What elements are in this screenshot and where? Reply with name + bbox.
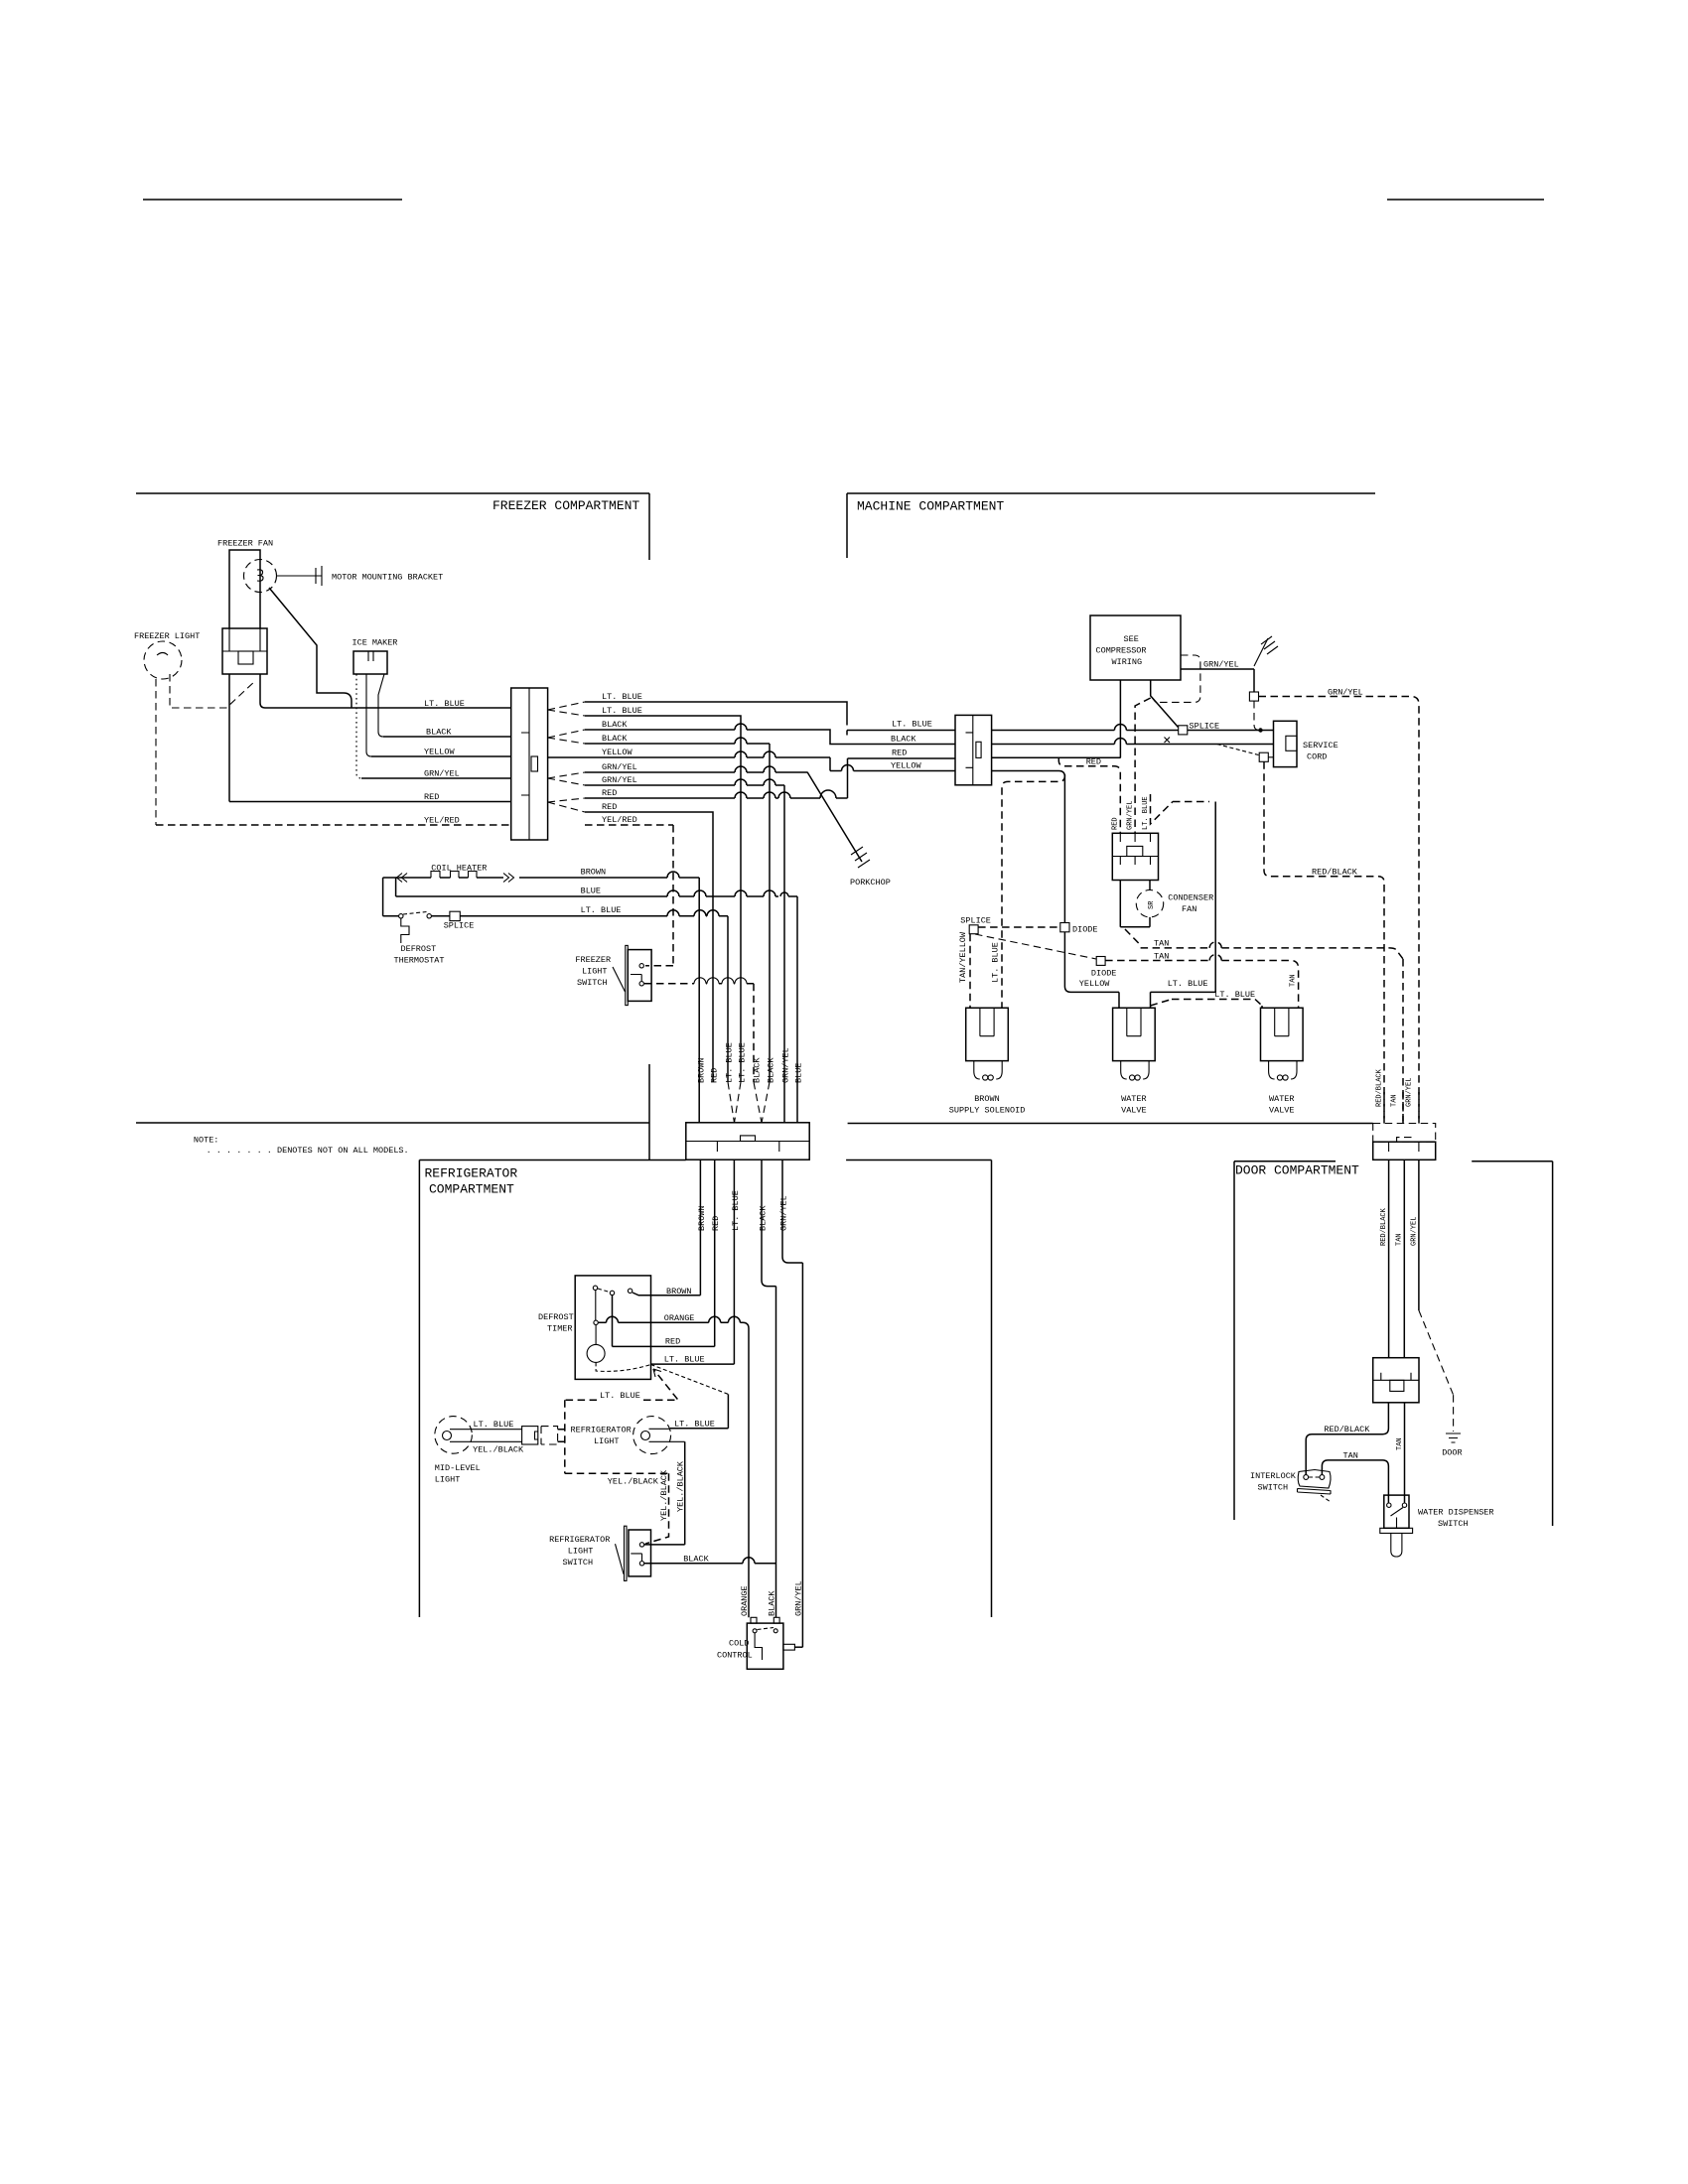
svg-text:BROWN: BROWN bbox=[697, 1205, 707, 1231]
svg-text:LIGHT: LIGHT bbox=[594, 1436, 620, 1446]
svg-text:GRN/YEL: GRN/YEL bbox=[602, 775, 637, 785]
svg-text:LIGHT: LIGHT bbox=[568, 1547, 594, 1557]
svg-text:SPLICE: SPLICE bbox=[444, 921, 475, 931]
svg-text:GRN/YEL: GRN/YEL bbox=[781, 1047, 791, 1083]
svg-text:COMPRESSOR: COMPRESSOR bbox=[1096, 646, 1147, 656]
svg-text:BROWN: BROWN bbox=[974, 1094, 1000, 1104]
svg-text:. . . . . . . DENOTES NOT ON A: . . . . . . . DENOTES NOT ON ALL MODELS. bbox=[207, 1146, 409, 1156]
svg-text:TIMER: TIMER bbox=[547, 1324, 573, 1334]
svg-text:RED: RED bbox=[1086, 756, 1101, 766]
svg-text:LT. BLUE: LT. BLUE bbox=[474, 1420, 514, 1430]
svg-text:FREEZER FAN: FREEZER FAN bbox=[217, 539, 273, 549]
svg-text:CONTROL: CONTROL bbox=[717, 1651, 753, 1661]
svg-text:LT. BLUE: LT. BLUE bbox=[731, 1190, 741, 1231]
svg-text:BLACK: BLACK bbox=[753, 1057, 763, 1083]
svg-text:GRN/YEL: GRN/YEL bbox=[1328, 688, 1363, 698]
svg-text:LT. BLUE: LT. BLUE bbox=[581, 905, 622, 915]
svg-text:COMPARTMENT: COMPARTMENT bbox=[429, 1182, 514, 1197]
svg-text:VALVE: VALVE bbox=[1269, 1106, 1295, 1116]
svg-text:YEL./BLACK: YEL./BLACK bbox=[659, 1469, 669, 1521]
svg-text:SWITCH: SWITCH bbox=[577, 978, 608, 988]
svg-text:YEL/RED: YEL/RED bbox=[602, 815, 637, 825]
svg-text:LT. BLUE: LT. BLUE bbox=[602, 692, 642, 702]
svg-text:RED/BLACK: RED/BLACK bbox=[1376, 1068, 1384, 1107]
svg-text:TAN/YELLOW: TAN/YELLOW bbox=[958, 931, 968, 983]
svg-text:RED: RED bbox=[602, 788, 617, 798]
svg-text:SEE: SEE bbox=[1124, 634, 1139, 644]
svg-text:TAN: TAN bbox=[1343, 1450, 1358, 1460]
svg-text:REFRIGERATOR: REFRIGERATOR bbox=[571, 1426, 632, 1435]
svg-text:FREEZER LIGHT: FREEZER LIGHT bbox=[134, 631, 200, 641]
svg-text:LIGHT: LIGHT bbox=[435, 1475, 461, 1485]
svg-text:REFRIGERATOR: REFRIGERATOR bbox=[549, 1535, 610, 1545]
svg-text:GRN/YEL: GRN/YEL bbox=[793, 1580, 803, 1616]
svg-text:WATER: WATER bbox=[1269, 1094, 1295, 1104]
svg-text:BLACK: BLACK bbox=[759, 1205, 769, 1231]
svg-text:LT. BLUE: LT. BLUE bbox=[600, 1391, 640, 1401]
svg-text:VALVE: VALVE bbox=[1121, 1106, 1147, 1116]
svg-text:DEFROST: DEFROST bbox=[538, 1312, 574, 1322]
svg-text:BLACK: BLACK bbox=[768, 1590, 777, 1616]
svg-text:BLACK: BLACK bbox=[683, 1554, 709, 1564]
svg-text:LT. BLUE: LT. BLUE bbox=[602, 706, 642, 716]
svg-text:BROWN: BROWN bbox=[581, 868, 607, 878]
svg-text:BLACK: BLACK bbox=[891, 735, 916, 745]
svg-text:ORANGE: ORANGE bbox=[664, 1313, 695, 1323]
svg-text:MID-LEVEL: MID-LEVEL bbox=[435, 1463, 481, 1473]
svg-text:YELLOW: YELLOW bbox=[424, 748, 456, 757]
svg-text:LT. BLUE: LT. BLUE bbox=[991, 942, 1001, 983]
svg-text:TAN: TAN bbox=[1290, 974, 1298, 987]
svg-text:RED: RED bbox=[665, 1337, 680, 1347]
svg-text:ICE MAKER: ICE MAKER bbox=[352, 638, 398, 648]
svg-text:GRN/YEL: GRN/YEL bbox=[1127, 801, 1135, 830]
svg-text:BROWN: BROWN bbox=[666, 1287, 692, 1297]
svg-text:SWITCH: SWITCH bbox=[1258, 1483, 1289, 1493]
svg-text:TAN: TAN bbox=[1154, 951, 1169, 961]
svg-text:RED: RED bbox=[424, 792, 439, 802]
svg-text:BROWN: BROWN bbox=[697, 1057, 707, 1083]
svg-text:YELLOW: YELLOW bbox=[602, 748, 633, 757]
svg-text:BLACK: BLACK bbox=[602, 734, 628, 744]
svg-text:LT. BLUE: LT. BLUE bbox=[674, 1420, 715, 1430]
svg-text:TAN: TAN bbox=[1154, 939, 1169, 949]
svg-text:YEL./BLACK: YEL./BLACK bbox=[608, 1477, 659, 1487]
svg-text:FREEZER: FREEZER bbox=[575, 955, 611, 965]
svg-text:GRN/YEL: GRN/YEL bbox=[1406, 1078, 1414, 1107]
svg-text:DOOR COMPARTMENT: DOOR COMPARTMENT bbox=[1235, 1163, 1359, 1178]
svg-text:COLD: COLD bbox=[729, 1639, 749, 1649]
svg-text:YEL/RED: YEL/RED bbox=[424, 816, 460, 826]
svg-text:WIRING: WIRING bbox=[1112, 657, 1143, 667]
svg-text:NOTE:: NOTE: bbox=[194, 1136, 219, 1146]
svg-text:THERMOSTAT: THERMOSTAT bbox=[394, 956, 445, 966]
svg-text:DIODE: DIODE bbox=[1091, 969, 1117, 979]
svg-text:RED: RED bbox=[710, 1068, 720, 1083]
svg-text:GRN/YEL: GRN/YEL bbox=[602, 762, 637, 772]
svg-text:WATER DISPENSER: WATER DISPENSER bbox=[1418, 1508, 1494, 1518]
svg-text:FAN: FAN bbox=[1182, 904, 1196, 914]
svg-text:BLUE: BLUE bbox=[581, 887, 601, 896]
svg-text:RED: RED bbox=[602, 802, 617, 812]
svg-text:BLACK: BLACK bbox=[426, 728, 452, 738]
svg-text:SWITCH: SWITCH bbox=[1438, 1519, 1469, 1529]
svg-text:BLACK: BLACK bbox=[602, 720, 628, 730]
svg-text:LT. BLUE: LT. BLUE bbox=[738, 1042, 748, 1083]
svg-text:LT. BLUE: LT. BLUE bbox=[1214, 990, 1255, 1000]
svg-text:LT. BLUE: LT. BLUE bbox=[424, 699, 465, 709]
svg-text:TAN: TAN bbox=[1396, 1437, 1404, 1450]
svg-text:LT. BLUE: LT. BLUE bbox=[725, 1042, 735, 1083]
svg-text:RED/BLACK: RED/BLACK bbox=[1312, 867, 1358, 877]
svg-text:ORANGE: ORANGE bbox=[740, 1585, 750, 1616]
svg-text:RED: RED bbox=[1112, 817, 1120, 830]
svg-text:LT. BLUE: LT. BLUE bbox=[1168, 979, 1208, 989]
svg-text:LT. BLUE: LT. BLUE bbox=[1142, 796, 1150, 830]
svg-text:LT. BLUE: LT. BLUE bbox=[892, 720, 932, 730]
svg-text:BLACK: BLACK bbox=[767, 1057, 776, 1083]
svg-text:YELLOW: YELLOW bbox=[891, 761, 922, 771]
svg-text:GRN/YEL: GRN/YEL bbox=[1410, 1217, 1418, 1246]
svg-text:GRN/YEL: GRN/YEL bbox=[1203, 660, 1239, 670]
svg-text:DEFROST: DEFROST bbox=[401, 944, 437, 954]
svg-text:MOTOR MOUNTING BRACKET: MOTOR MOUNTING BRACKET bbox=[332, 573, 443, 583]
svg-text:SWITCH: SWITCH bbox=[563, 1558, 594, 1568]
svg-text:RED/BLACK: RED/BLACK bbox=[1324, 1425, 1370, 1434]
svg-text:SERVICE: SERVICE bbox=[1303, 741, 1338, 751]
svg-text:RED: RED bbox=[892, 749, 907, 758]
svg-text:WATER: WATER bbox=[1121, 1094, 1147, 1104]
svg-text:TAN: TAN bbox=[1396, 1233, 1404, 1246]
svg-text:FREEZER COMPARTMENT: FREEZER COMPARTMENT bbox=[492, 498, 639, 513]
svg-text:LT. BLUE: LT. BLUE bbox=[664, 1355, 705, 1365]
svg-text:DOOR: DOOR bbox=[1442, 1448, 1462, 1458]
svg-text:MACHINE COMPARTMENT: MACHINE COMPARTMENT bbox=[857, 499, 1004, 514]
svg-text:BLUE: BLUE bbox=[794, 1063, 804, 1083]
svg-text:TAN: TAN bbox=[1391, 1094, 1399, 1107]
svg-text:RED/BLACK: RED/BLACK bbox=[1380, 1207, 1388, 1246]
svg-text:GRN/YEL: GRN/YEL bbox=[779, 1195, 789, 1231]
svg-text:RED: RED bbox=[711, 1216, 721, 1231]
svg-text:DIODE: DIODE bbox=[1072, 925, 1098, 935]
svg-text:SUPPLY SOLENOID: SUPPLY SOLENOID bbox=[949, 1106, 1026, 1116]
svg-text:CONDENSER: CONDENSER bbox=[1168, 893, 1213, 903]
svg-text:GRN/YEL: GRN/YEL bbox=[424, 769, 460, 779]
svg-text:INTERLOCK: INTERLOCK bbox=[1250, 1471, 1297, 1481]
svg-text:CORD: CORD bbox=[1307, 752, 1327, 762]
svg-text:PORKCHOP: PORKCHOP bbox=[850, 878, 891, 887]
svg-text:SR: SR bbox=[1148, 900, 1156, 909]
svg-text:YELLOW: YELLOW bbox=[1079, 979, 1111, 989]
svg-text:REFRIGERATOR: REFRIGERATOR bbox=[425, 1166, 518, 1181]
svg-text:YEL./BLACK: YEL./BLACK bbox=[473, 1445, 524, 1455]
svg-text:SPLICE: SPLICE bbox=[960, 916, 991, 926]
svg-text:SPLICE: SPLICE bbox=[1190, 722, 1220, 732]
svg-text:LIGHT: LIGHT bbox=[582, 967, 608, 977]
